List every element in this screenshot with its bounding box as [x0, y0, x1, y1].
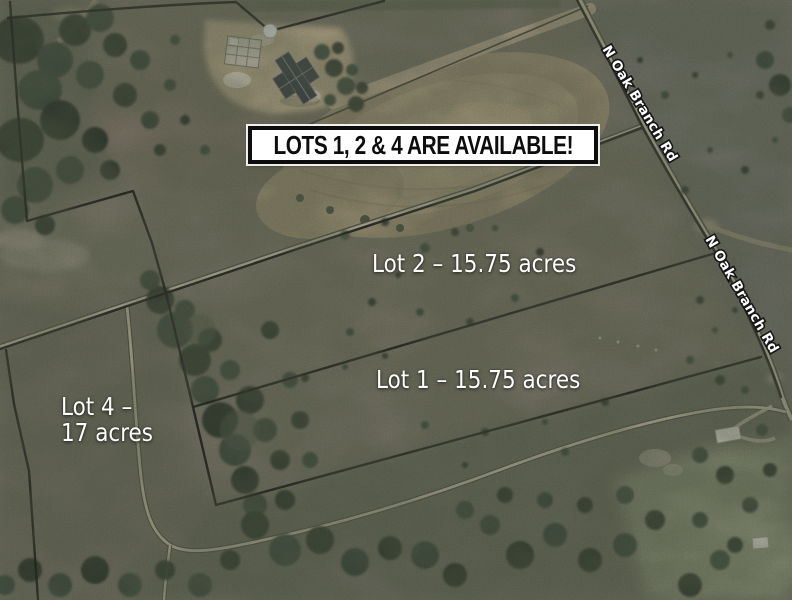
- lot2-acreage-label: Lot 2 – 15.75 acres: [372, 251, 576, 276]
- aerial-lot-listing: N Oak Branch Rd N Oak Branch Rd LOTS 1, …: [0, 0, 792, 600]
- photo-grain: [0, 0, 792, 600]
- lot1-acreage-label: Lot 1 – 15.75 acres: [376, 367, 580, 392]
- satellite-map: N Oak Branch Rd N Oak Branch Rd: [0, 0, 792, 600]
- availability-banner: LOTS 1, 2 & 4 ARE AVAILABLE!: [248, 126, 598, 164]
- availability-banner-text: LOTS 1, 2 & 4 ARE AVAILABLE!: [273, 130, 573, 161]
- lot4-acreage-label: Lot 4 – 17 acres: [61, 394, 153, 446]
